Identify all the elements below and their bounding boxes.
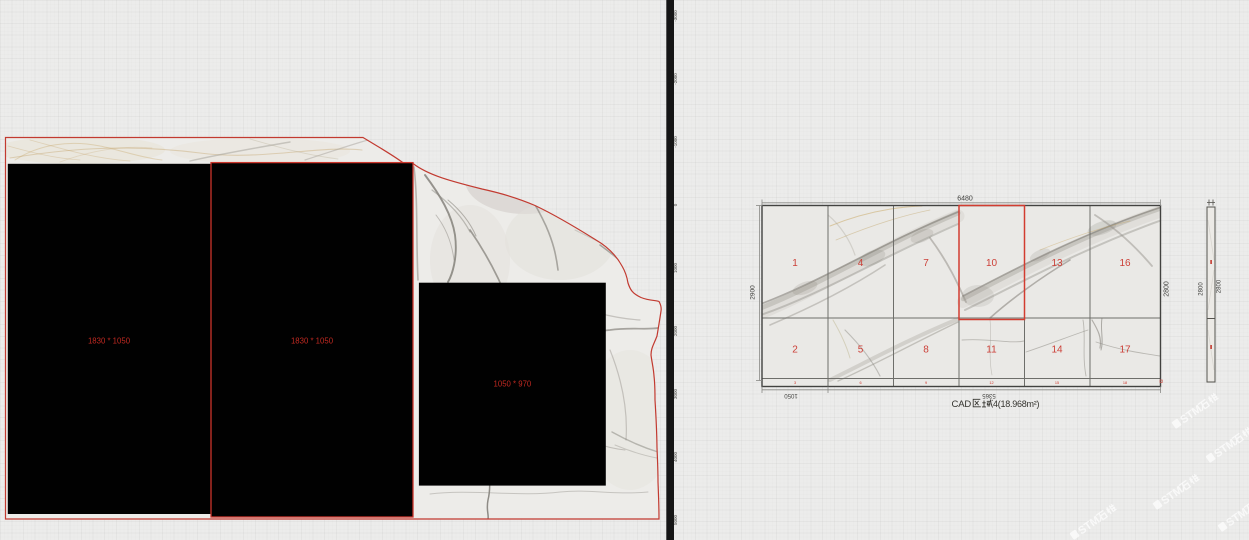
svg-text:11: 11 xyxy=(986,345,997,356)
svg-text:2800: 2800 xyxy=(1164,281,1171,297)
svg-text:4000: 4000 xyxy=(673,451,678,462)
svg-text:5365: 5365 xyxy=(982,392,996,398)
svg-text:1050: 1050 xyxy=(784,392,798,398)
svg-text:17: 17 xyxy=(1119,345,1131,356)
svg-text:4: 4 xyxy=(858,258,864,269)
svg-text:6480: 6480 xyxy=(957,196,973,203)
svg-text:8: 8 xyxy=(923,345,929,356)
svg-text:13: 13 xyxy=(1051,258,1063,269)
svg-text:-2000: -2000 xyxy=(673,73,678,85)
svg-text:2800: 2800 xyxy=(1217,279,1223,293)
svg-text:-3000: -3000 xyxy=(673,10,678,22)
svg-text:14: 14 xyxy=(1051,345,1063,356)
svg-text:1: 1 xyxy=(792,258,798,269)
svg-text:-1000: -1000 xyxy=(673,136,678,148)
svg-text:12: 12 xyxy=(989,381,993,385)
svg-text:5000: 5000 xyxy=(673,514,678,525)
svg-text:2800: 2800 xyxy=(1199,282,1205,296)
svg-text:15: 15 xyxy=(1055,381,1059,385)
svg-text:6: 6 xyxy=(859,381,861,385)
svg-text:9: 9 xyxy=(925,381,927,385)
svg-text:18: 18 xyxy=(1123,381,1127,385)
svg-text:2000: 2000 xyxy=(673,325,678,336)
svg-text:7: 7 xyxy=(923,258,929,269)
svg-text:3000: 3000 xyxy=(673,388,678,399)
svg-text:5: 5 xyxy=(858,345,864,356)
svg-text:10: 10 xyxy=(986,258,998,269)
svg-text:1000: 1000 xyxy=(673,262,678,273)
svg-text:3: 3 xyxy=(794,381,796,385)
svg-text:1830 * 1050: 1830 * 1050 xyxy=(291,337,334,346)
svg-text:16: 16 xyxy=(1119,258,1131,269)
svg-text:CAD: CAD xyxy=(952,399,972,410)
svg-text:2: 2 xyxy=(792,345,798,356)
svg-text:2900: 2900 xyxy=(750,285,757,300)
svg-text:1830 * 1050: 1830 * 1050 xyxy=(88,337,131,346)
svg-text:1050 * 970: 1050 * 970 xyxy=(494,380,532,389)
svg-text:4(18.968m²): 4(18.968m²) xyxy=(993,399,1040,409)
